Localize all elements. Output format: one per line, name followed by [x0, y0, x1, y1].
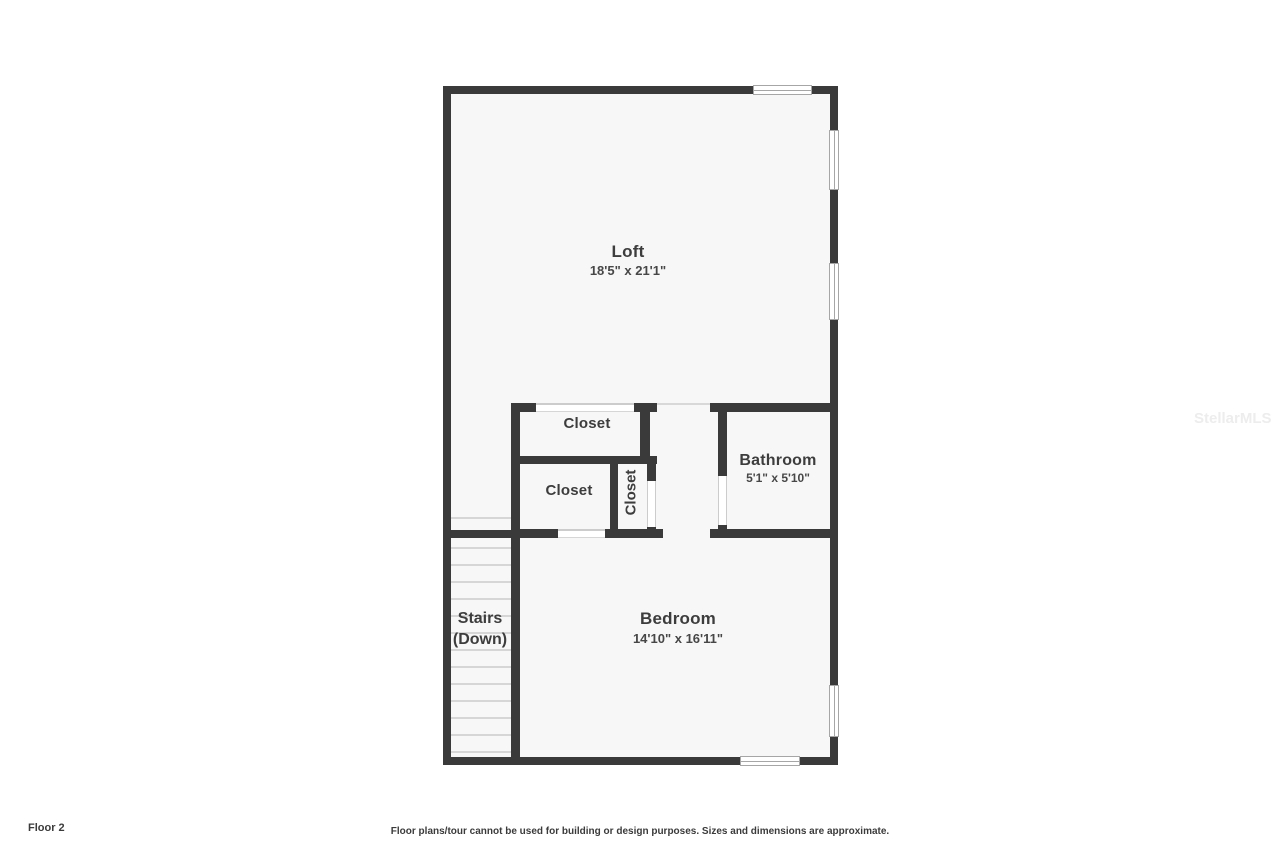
outer-wall-right — [830, 86, 838, 130]
interior-wall — [511, 403, 536, 412]
room-label-bedroom: Bedroom — [578, 609, 778, 629]
stair-tread — [451, 751, 511, 753]
closet-divider-wall — [640, 403, 650, 464]
disclaimer-text: Floor plans/tour cannot be used for buil… — [0, 826, 1280, 837]
closet-opening — [536, 403, 634, 412]
closet-door — [558, 529, 605, 538]
room-label-loft: Loft — [528, 242, 728, 262]
window — [753, 85, 812, 95]
bathroom-wall-left — [718, 525, 727, 538]
room-label-closet-lower: Closet — [519, 482, 619, 499]
stairwell-edge — [448, 530, 511, 538]
outer-wall-left — [443, 86, 451, 765]
stair-tread — [451, 547, 511, 549]
outer-wall-bottom-right — [800, 757, 838, 765]
stair-tread — [451, 564, 511, 566]
window — [740, 756, 800, 766]
stair-tread — [451, 598, 511, 600]
stair-tread — [451, 517, 511, 519]
stair-tread — [451, 700, 511, 702]
room-dims-bedroom: 14'10" x 16'11" — [578, 631, 778, 646]
window — [829, 263, 839, 320]
stairs-line1: Stairs — [458, 610, 502, 627]
window — [829, 685, 839, 737]
room-label-closet-vertical: Closet — [623, 443, 640, 543]
room-label-closet-top: Closet — [537, 415, 637, 432]
stair-tread — [451, 717, 511, 719]
interior-wall — [511, 529, 558, 538]
stair-tread — [451, 683, 511, 685]
stair-tread — [451, 666, 511, 668]
room-dims-bathroom: 5'1" x 5'10" — [708, 471, 848, 485]
room-dims-loft: 18'5" x 21'1" — [528, 263, 728, 278]
floor-plan-page: Loft 18'5" x 21'1" Closet Closet Closet … — [0, 0, 1280, 852]
closet-door — [647, 481, 656, 527]
room-label-stairs: Stairs (Down) — [428, 608, 532, 650]
room-label-bathroom: Bathroom — [708, 452, 848, 470]
outer-wall-top-left — [443, 86, 753, 94]
bathroom-wall-top — [710, 403, 830, 412]
outer-wall-right — [830, 190, 838, 263]
outer-wall-bottom-left — [443, 757, 740, 765]
bathroom-wall-bottom — [710, 529, 830, 538]
stair-tread — [451, 581, 511, 583]
stairs-line2: (Down) — [453, 631, 507, 648]
hallway-opening — [657, 403, 710, 412]
closet-wall — [647, 456, 656, 481]
stair-tread — [451, 734, 511, 736]
watermark: StellarMLS — [1194, 410, 1272, 427]
outer-wall-right — [830, 320, 838, 685]
window — [829, 130, 839, 190]
